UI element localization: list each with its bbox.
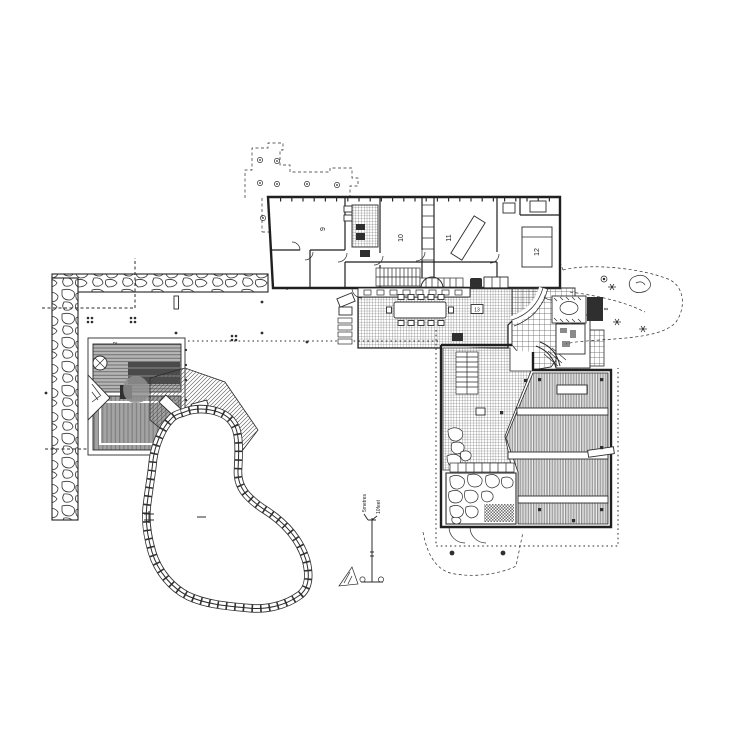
scale-circle-right xyxy=(378,577,383,582)
entry-label: 8 xyxy=(604,307,610,310)
hatch-box xyxy=(476,408,485,415)
kitchen-counter xyxy=(484,277,508,288)
stove-block xyxy=(470,278,482,288)
main-stairs xyxy=(456,352,478,394)
scale-bar: 5metres 10feet xyxy=(339,493,384,586)
scale-feet-label: 10feet xyxy=(376,499,382,514)
scale-circle-left xyxy=(360,577,365,582)
scale-metres-label: 5metres xyxy=(362,493,368,512)
upper-wing: 9 10 11 12 xyxy=(268,197,560,300)
bath-fixture-2 xyxy=(356,233,365,240)
wc-fixture xyxy=(344,206,352,212)
terrace-west-end xyxy=(337,293,355,344)
sauna-label: 2 xyxy=(113,341,119,344)
east-entry: 8 xyxy=(552,262,682,354)
hatch-dot xyxy=(500,411,503,414)
garden-dot-1 xyxy=(450,551,455,556)
terrace-label: 13 xyxy=(474,308,480,314)
flagstone-area xyxy=(446,473,516,524)
garden-dot-2 xyxy=(501,551,506,556)
shelf-row xyxy=(450,463,514,472)
drive-plants xyxy=(601,276,647,332)
garden-bed-dashed xyxy=(423,532,523,575)
terrace-hearth xyxy=(452,333,463,341)
floor-plan-drawing: 9 10 11 12 13 xyxy=(0,0,750,750)
gate-post xyxy=(174,296,179,309)
room12-bed xyxy=(522,227,552,267)
south-doors xyxy=(449,527,486,543)
upper-stairs xyxy=(376,268,420,286)
room9-label: 9 xyxy=(320,227,327,231)
stone-wall-top xyxy=(52,274,268,292)
east-chimney xyxy=(587,297,603,321)
toproom-cabinet xyxy=(530,201,546,212)
floor-plan-page: 9 10 11 12 13 xyxy=(0,0,750,750)
pool xyxy=(144,409,308,608)
bath-fixture xyxy=(356,224,365,230)
boulder xyxy=(629,275,650,292)
scale-bar-lines xyxy=(361,514,383,582)
hatch-dot-2 xyxy=(524,379,527,382)
room12-cabinet xyxy=(503,203,515,213)
room12-label: 12 xyxy=(534,248,541,256)
north-arrow xyxy=(339,567,358,586)
wc-fixture-2 xyxy=(344,215,352,221)
dining-table xyxy=(394,302,446,318)
room10-label: 10 xyxy=(398,234,405,242)
room11-label: 11 xyxy=(446,234,453,241)
plank-furniture-1 xyxy=(557,385,587,394)
canopy-outline-dashed xyxy=(245,143,358,198)
stone-wall-left xyxy=(52,278,78,520)
chimney-block xyxy=(360,250,370,257)
